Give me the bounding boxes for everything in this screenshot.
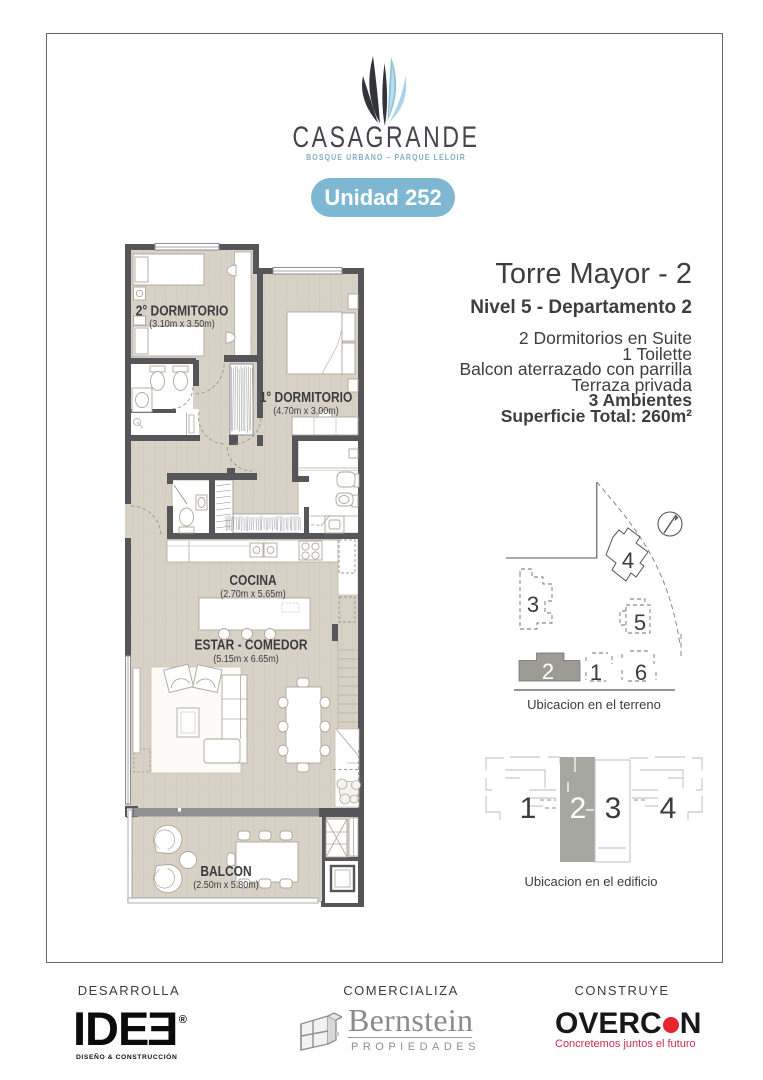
svg-text:3: 3: [527, 592, 539, 617]
svg-text:COCINA: COCINA: [229, 572, 276, 589]
svg-text:Ubicacion en el terreno: Ubicacion en el terreno: [527, 697, 661, 712]
svg-text:(5.15m x 6.65m): (5.15m x 6.65m): [213, 653, 278, 665]
svg-text:2: 2: [542, 659, 554, 684]
svg-text:4: 4: [622, 548, 634, 573]
svg-text:Ubicacion en el edificio: Ubicacion en el edificio: [525, 874, 658, 889]
svg-text:(4.70m x 3.00m): (4.70m x 3.00m): [273, 405, 338, 417]
svg-text:3: 3: [605, 792, 622, 825]
svg-text:ESTAR - COMEDOR: ESTAR - COMEDOR: [194, 636, 307, 653]
svg-text:6: 6: [635, 660, 647, 685]
svg-text:(3.10m x 3.50m): (3.10m x 3.50m): [149, 318, 214, 330]
svg-text:2: 2: [570, 792, 587, 825]
svg-text:2° DORMITORIO: 2° DORMITORIO: [136, 302, 229, 319]
svg-text:(2.70m x 5.65m): (2.70m x 5.65m): [220, 588, 285, 600]
svg-text:4: 4: [660, 792, 677, 825]
svg-text:1° DORMITORIO: 1° DORMITORIO: [260, 389, 353, 406]
svg-text:(2.50m x 5.80m): (2.50m x 5.80m): [193, 879, 258, 891]
svg-text:1: 1: [590, 660, 602, 685]
svg-text:BALCON: BALCON: [200, 863, 251, 880]
svg-text:1: 1: [520, 792, 537, 825]
svg-text:5: 5: [634, 610, 646, 635]
